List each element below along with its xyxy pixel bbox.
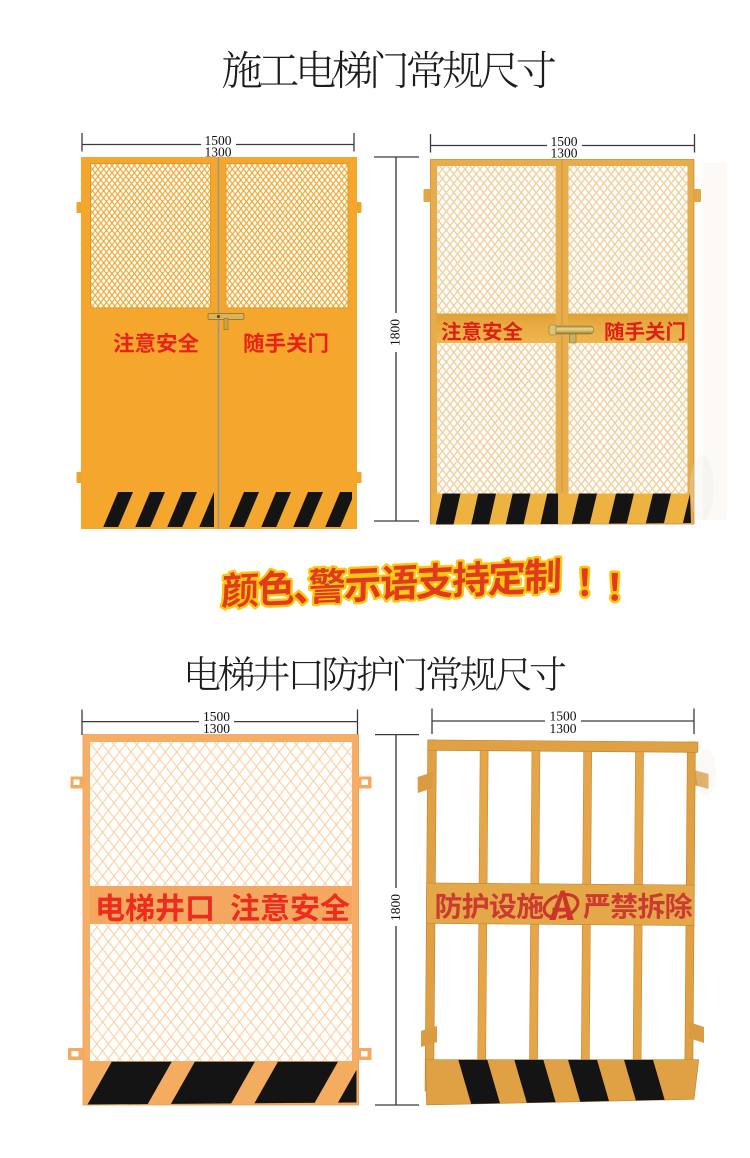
svg-text:1300: 1300 [551,145,578,160]
svg-text:1300: 1300 [550,721,577,736]
svg-text:1800: 1800 [388,319,403,346]
svg-text:1300: 1300 [203,721,230,736]
svg-text:1800: 1800 [388,894,403,921]
